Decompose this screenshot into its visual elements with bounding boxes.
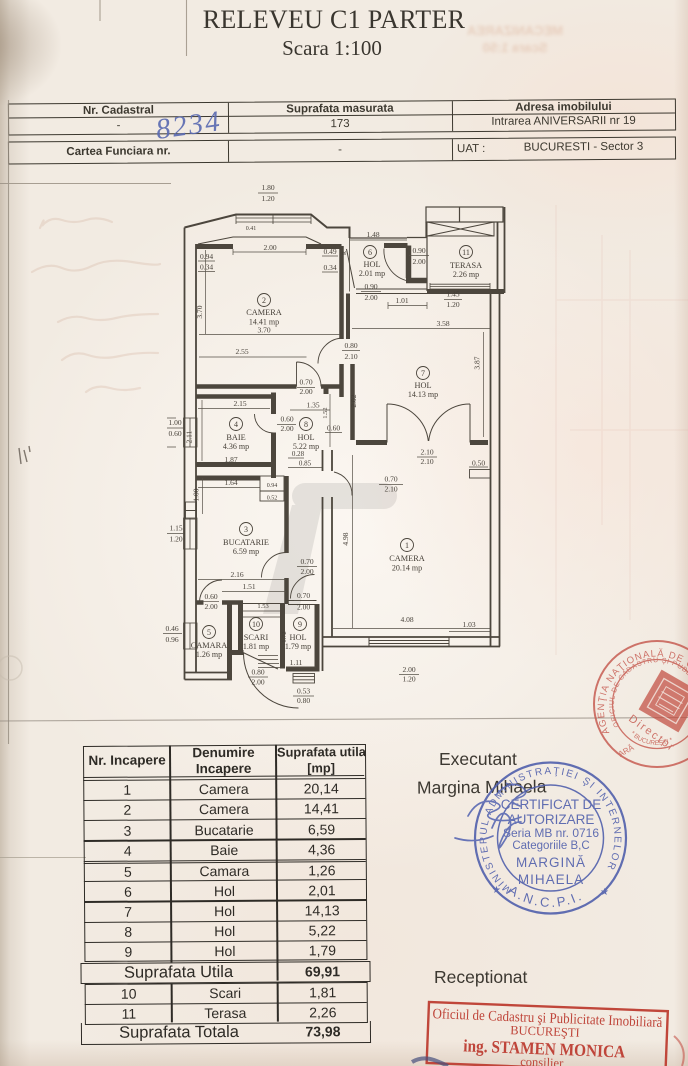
svg-text:AUTORIZARE: AUTORIZARE — [508, 812, 595, 827]
svg-text:★: ★ — [492, 885, 501, 896]
svg-text:MARGINĂ: MARGINĂ — [516, 855, 586, 870]
svg-text:Categoriile B,C: Categoriile B,C — [512, 840, 589, 852]
svg-text:ARĂ: ARĂ — [617, 743, 636, 759]
svg-text:★: ★ — [600, 887, 609, 898]
svg-text:MIHAELA: MIHAELA — [518, 872, 584, 887]
svg-text:consilier: consilier — [520, 1055, 564, 1066]
svg-text:Seria MB nr. 0716: Seria MB nr. 0716 — [503, 826, 599, 840]
svg-text:8234: 8234 — [154, 105, 224, 146]
